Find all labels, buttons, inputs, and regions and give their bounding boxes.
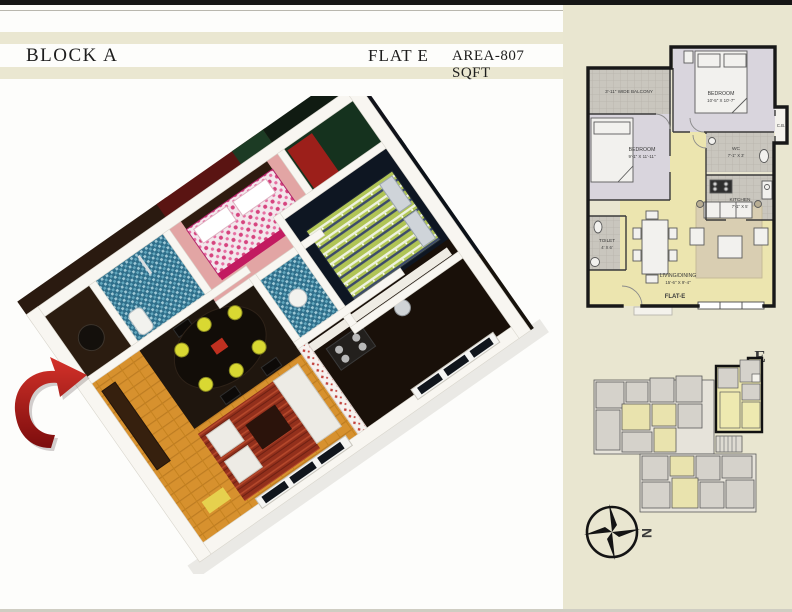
living-label: LIVING/DINING [660,273,697,279]
area-label: AREA-807 SQFT [452,48,563,82]
bedroom-left-dims: 9'-1" X 11'-11" [628,154,656,159]
bed-left [591,118,633,182]
sheet-top-edge [0,10,563,11]
key-plan-flat-e-highlight [716,358,762,432]
block-title: BLOCK A [26,45,118,67]
balcony-label: 3'-11" WIDE BALCONY [605,89,653,94]
brochure-page: BLOCK A FLAT E AREA-807 SQFT [0,0,792,612]
entry-direction-arrow-icon [0,342,100,452]
bedroom-top-dims: 10'-5" X 10'-7" [707,98,735,103]
kitchen-label: KITCHEN [729,197,751,203]
flat-title: FLAT E [368,46,429,66]
compass-icon: N [578,496,682,580]
flat-e-2d-plan: 3'-11" WIDE BALCONY BEDROOM 10'-5" X 10'… [578,38,792,328]
living-dims: 15'-6" X 9'-4" [665,280,691,285]
compass-star [584,504,640,560]
living-window [698,302,764,309]
wc-label: WC [732,146,741,152]
isometric-group [8,96,549,574]
entry-step [634,307,672,315]
sofa-set [690,201,768,279]
bedroom-top-label: BEDROOM [708,91,735,97]
north-label: N [639,528,655,538]
cb-label: C.B. [777,123,786,128]
toilet-dims: 4' X 6' [601,245,613,250]
wc-dims: 7'-1" X 3' [728,153,745,158]
flat-tag: FLAT-E [665,294,686,300]
header-stripe-top [0,32,563,44]
kitchen-dims: 7'-1" X 5' [732,204,749,209]
flat-3d-render [8,96,572,574]
header: BLOCK A FLAT E AREA-807 SQFT [0,44,563,67]
scan-edge-top [0,0,792,5]
key-plan-stairs [716,436,742,452]
toilet-label: TOILET [599,238,615,243]
bedroom-left-label: BEDROOM [629,147,656,153]
key-plan-wing-upper [594,376,714,454]
